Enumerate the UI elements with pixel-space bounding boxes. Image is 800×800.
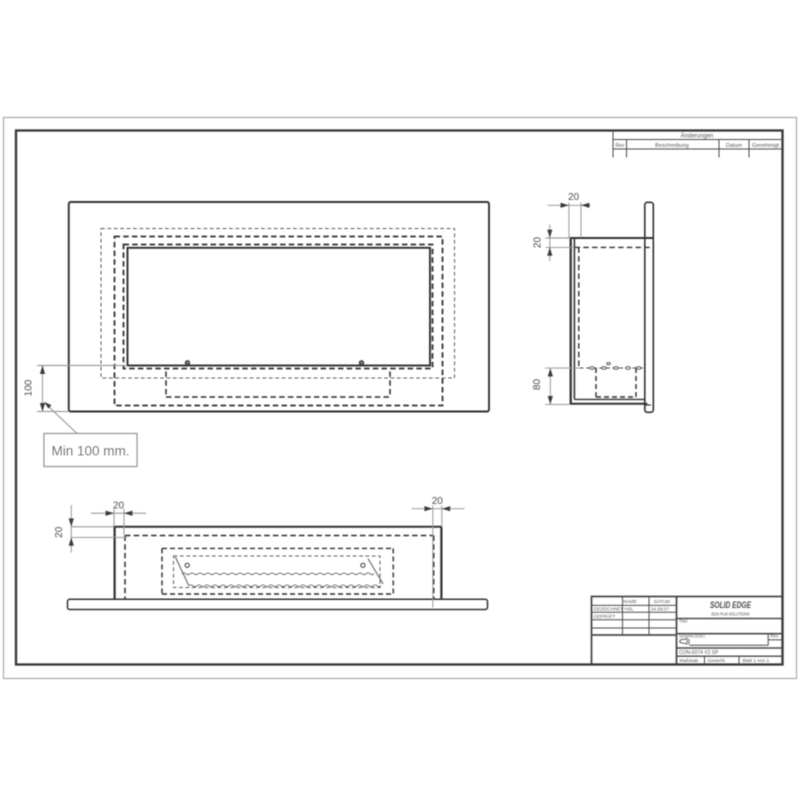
svg-text:Beschreibung: Beschreibung — [655, 143, 689, 149]
svg-text:20: 20 — [568, 192, 580, 203]
svg-text:80: 80 — [532, 379, 543, 391]
svg-text:24.09.07: 24.09.07 — [651, 607, 669, 612]
svg-text:20: 20 — [533, 237, 544, 249]
svg-text:Min 100 mm.: Min 100 mm. — [51, 444, 129, 459]
svg-text:Titel: Titel — [679, 619, 687, 624]
svg-text:DATUM: DATUM — [654, 599, 670, 604]
svg-text:Gewicht: Gewicht — [708, 658, 726, 664]
svg-text:GEPRÜFT: GEPRÜFT — [594, 613, 616, 619]
svg-text:Änderungen: Änderungen — [681, 133, 714, 140]
svg-text:100: 100 — [24, 379, 35, 396]
svg-text:Genehmigt: Genehmigt — [752, 143, 779, 149]
svg-text:Blatt 1 von 1: Blatt 1 von 1 — [743, 658, 770, 664]
svg-text:Maßstab: Maßstab — [680, 658, 699, 664]
svg-text:CON-5074 V2 SP: CON-5074 V2 SP — [679, 650, 719, 656]
svg-text:Rev: Rev — [771, 633, 780, 638]
svg-text:Sachnummer (Zeichn.): Sachnummer (Zeichn.) — [679, 633, 705, 638]
svg-text:Datum: Datum — [726, 143, 743, 149]
svg-text:20: 20 — [432, 496, 444, 507]
svg-text:SOLID EDGE: SOLID EDGE — [710, 600, 751, 611]
svg-text:GEZEICHNET: GEZEICHNET — [594, 607, 624, 612]
svg-text:Rev: Rev — [615, 143, 624, 149]
svg-text:20: 20 — [113, 501, 125, 512]
svg-text:EDS-PLM SOLUTIONS: EDS-PLM SOLUTIONS — [712, 611, 750, 616]
svg-text:NAME: NAME — [623, 599, 636, 604]
svg-text:HSL: HSL — [625, 607, 634, 612]
svg-text:20: 20 — [54, 526, 65, 538]
